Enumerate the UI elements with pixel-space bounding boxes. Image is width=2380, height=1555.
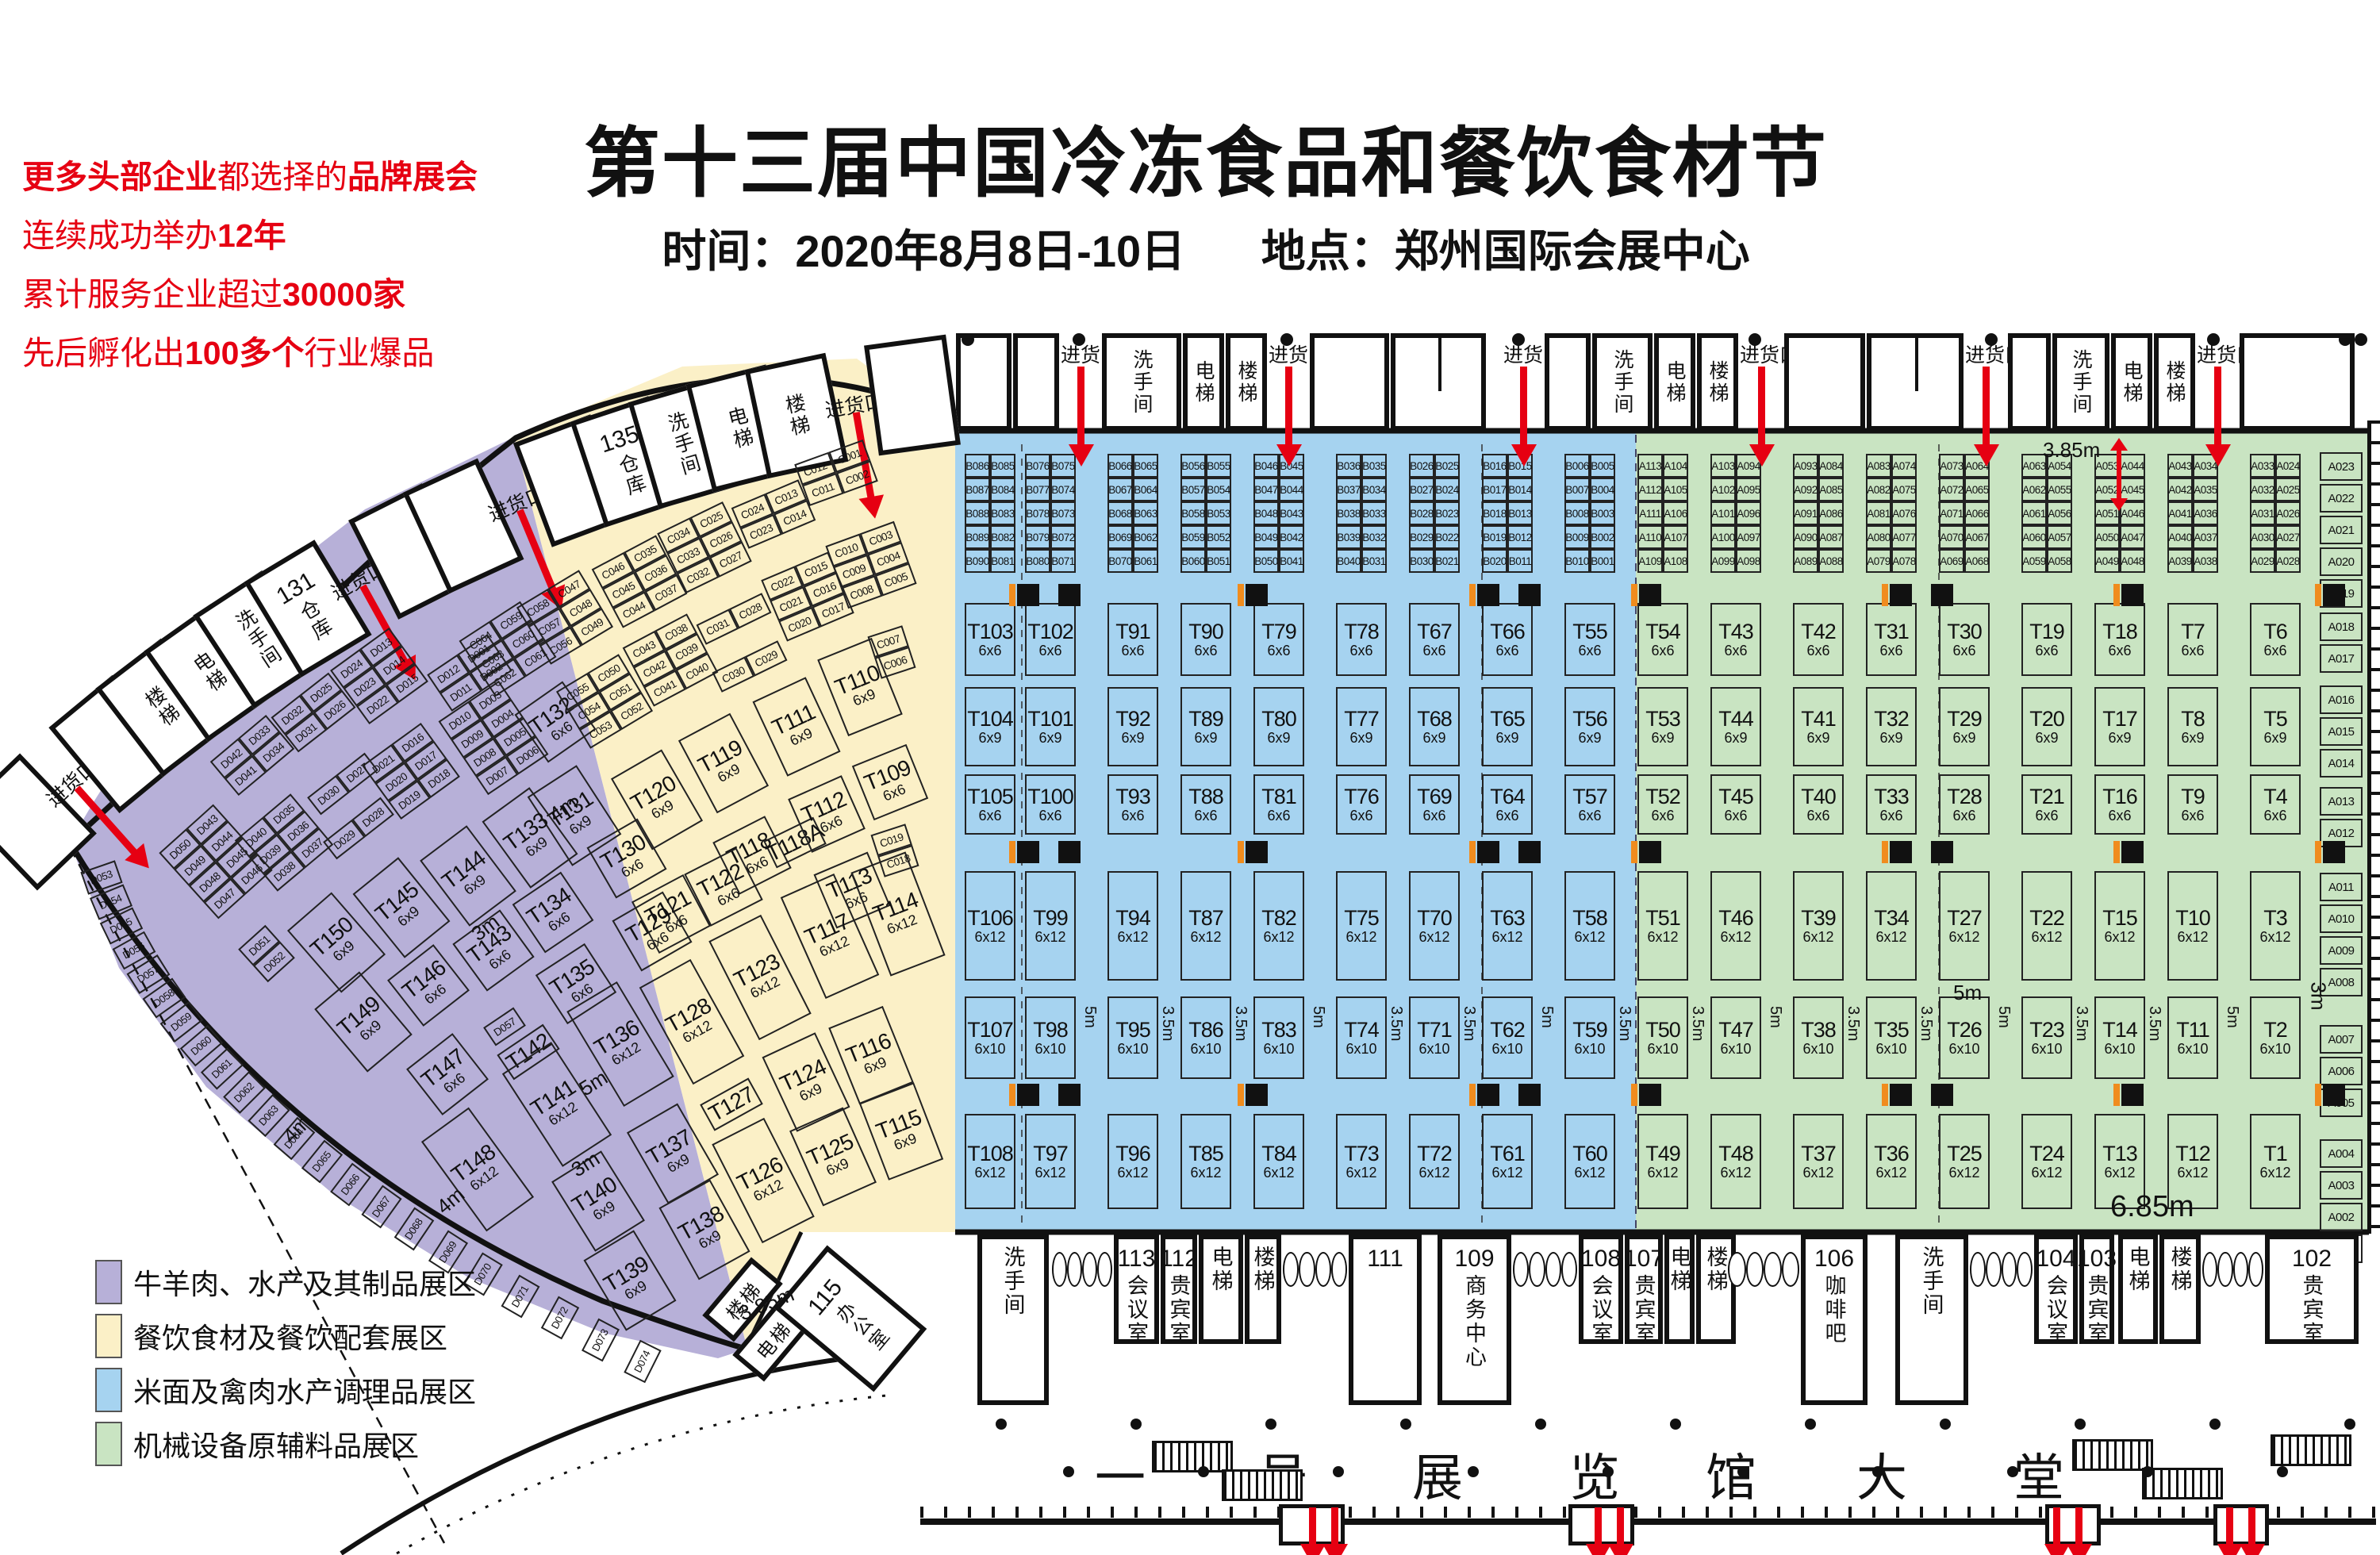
booth-B006: B006: [1564, 454, 1590, 478]
booth-T72: T726x12: [1409, 1114, 1460, 1209]
booth-B090: B090: [965, 549, 990, 573]
legend-item-catering: 餐饮食材及餐饮配套展区: [95, 1309, 476, 1363]
booth-B046: B046: [1253, 454, 1279, 478]
kiosk-marker: [1009, 584, 1015, 606]
booth-A021: A021: [2320, 516, 2363, 544]
booth-B086: B086: [965, 454, 990, 478]
booth-id: T17: [2102, 708, 2137, 730]
booth-size: 6x10: [2104, 1042, 2135, 1057]
booth-size: 6x12: [2259, 1165, 2290, 1181]
booth-B089: B089: [965, 525, 990, 549]
booth-B049: B049: [1253, 525, 1279, 549]
booth-B055: B055: [1206, 454, 1231, 478]
kiosk-marker: [1017, 584, 1039, 606]
booth-B022: B022: [1434, 525, 1460, 549]
legend-swatch-green: [95, 1422, 122, 1466]
kiosk-marker: [2121, 584, 2144, 606]
booth-size: 6x9: [1952, 731, 1975, 746]
booth-id: T31: [1874, 620, 1909, 643]
booth-T50: T506x10: [1637, 996, 1688, 1079]
booth-T29: T296x9: [1939, 687, 1990, 766]
booth-A106: A106: [1663, 501, 1688, 525]
booth-id: T42: [1801, 620, 1836, 643]
kiosk-marker: [1477, 1084, 1499, 1106]
booth-id: T108: [967, 1142, 1013, 1165]
booth-id: T20: [2029, 708, 2064, 730]
booth-id: T1: [2263, 1142, 2287, 1165]
booth-B053: B053: [1206, 501, 1231, 525]
room-label: 电梯: [1660, 360, 1689, 405]
booth-id: T5: [2263, 708, 2287, 730]
booth-size: 6x6: [1806, 643, 1829, 658]
booth-size: 6x6: [1422, 808, 1445, 824]
vip-room: 112贵宾室: [1161, 1234, 1197, 1344]
booth-A071: A071: [1939, 501, 1964, 525]
kiosk-marker: [1639, 841, 1661, 863]
column-dot: [1468, 1466, 1479, 1477]
entrance-arrow: [2226, 1507, 2233, 1545]
booth-T39: T396x12: [1793, 871, 1844, 981]
booth-size: 6x6: [1267, 643, 1290, 658]
room-label: 洗手间: [1917, 1246, 1948, 1317]
booth-size: 6x10: [1948, 1042, 1979, 1057]
elevator: 电梯: [1199, 1234, 1243, 1344]
booth-T15: T156x12: [2094, 871, 2145, 981]
kiosk-marker: [1518, 841, 1541, 863]
booth-A089: A089: [1793, 549, 1818, 573]
booth-A113: A113: [1637, 454, 1663, 478]
booth-T88: T886x6: [1180, 774, 1231, 835]
booth-B065: B065: [1133, 454, 1158, 478]
booth-size: 6x6: [1038, 643, 1061, 658]
booth-size: 6x10: [1720, 1042, 1751, 1057]
booth-size: 6x12: [1117, 1165, 1148, 1181]
booth-size: 6x10: [2259, 1042, 2290, 1057]
measure-label: 6.85m: [2110, 1190, 2194, 1224]
booth-B032: B032: [1361, 525, 1387, 549]
booth-id: T48: [1718, 1142, 1753, 1165]
booth-id: T99: [1033, 907, 1068, 929]
booth-size: 6x10: [1418, 1042, 1449, 1057]
booth-id: T13: [2102, 1142, 2137, 1165]
column-dot: [1265, 1419, 1276, 1430]
booth-A043: A043: [2167, 454, 2193, 478]
measure-arrow: [2110, 438, 2128, 451]
room-label: 会议室: [2040, 1274, 2071, 1346]
column-dot: [1872, 1466, 1883, 1477]
booth-A097: A097: [1736, 525, 1761, 549]
booth-size: 6x10: [1574, 1042, 1605, 1057]
booth-A110: A110: [1637, 525, 1663, 549]
booth-T82: T826x12: [1253, 871, 1304, 981]
booth-size: 6x12: [1035, 1165, 1065, 1181]
booth-T59: T596x10: [1564, 996, 1615, 1079]
booth-id: T78: [1344, 620, 1379, 643]
booth-B019: B019: [1482, 525, 1507, 549]
booth-id: T15: [2102, 907, 2137, 929]
lobby-char: 一: [1095, 1438, 1146, 1511]
booth-id: T7: [2181, 620, 2205, 643]
booth-id: T16: [2102, 785, 2137, 808]
a-booth-block: A073A064A072A065A071A066A070A067A069A068: [1939, 454, 1990, 573]
booth-A102: A102: [1710, 478, 1736, 501]
restroom: 洗手间: [2052, 333, 2109, 431]
booth-id: T60: [1572, 1142, 1607, 1165]
booth-id: T75: [1344, 907, 1379, 929]
booth-size: 6x10: [2031, 1042, 2062, 1057]
booth-id: T35: [1874, 1019, 1909, 1041]
booth-T22: T226x12: [2021, 871, 2072, 981]
meeting-room: 113会议室: [1114, 1234, 1159, 1344]
booth-id: T39: [1801, 907, 1836, 929]
booth-T77: T776x9: [1336, 687, 1387, 766]
booth-id: T32: [1874, 708, 1909, 730]
room-label: 楼梯: [1701, 1246, 1732, 1293]
booth-T67: T676x6: [1409, 603, 1460, 676]
booth-B063: B063: [1133, 501, 1158, 525]
booth-size: 6x6: [2108, 808, 2131, 824]
booth-A079: A079: [1866, 549, 1891, 573]
booth-id: T12: [2175, 1142, 2210, 1165]
booth-size: 6x6: [2181, 808, 2204, 824]
booth-T95: T956x10: [1107, 996, 1158, 1079]
booth-size: 6x6: [2108, 643, 2131, 658]
booth-size: 6x10: [2177, 1042, 2208, 1057]
booth-id: T21: [2029, 785, 2064, 808]
booth-id: T61: [1490, 1142, 1525, 1165]
booth-B009: B009: [1564, 525, 1590, 549]
booth-size: 6x9: [1651, 731, 1674, 746]
booth-id: T92: [1115, 708, 1150, 730]
booth-T5: T56x9: [2250, 687, 2301, 766]
booth-A002: A002: [2320, 1203, 2363, 1231]
booth-id: T65: [1490, 708, 1525, 730]
aisle-width-label: 3.5m: [1917, 1006, 1935, 1041]
booth-A060: A060: [2021, 525, 2047, 549]
booth-T11: T116x10: [2167, 996, 2218, 1079]
booth-id: T52: [1645, 785, 1680, 808]
kiosk-marker: [1246, 584, 1268, 606]
kiosk-marker: [1882, 584, 1888, 606]
room-number: 111: [1367, 1246, 1403, 1273]
booth-id: T37: [1801, 1142, 1836, 1165]
entrance-arrow: [2248, 1507, 2255, 1545]
booth-A084: A084: [1818, 454, 1844, 478]
kiosk-marker: [1238, 584, 1244, 606]
booth-B002: B002: [1590, 525, 1615, 549]
booth-size: 6x12: [1948, 1165, 1979, 1181]
booth-id: T103: [967, 620, 1013, 643]
room-number: 102: [2292, 1246, 2332, 1273]
column-dot: [996, 1419, 1007, 1430]
booth-T20: T206x9: [2021, 687, 2072, 766]
booth-size: 6x6: [1879, 643, 1902, 658]
booth-id: T38: [1801, 1019, 1836, 1041]
legend-swatch-yellow: [95, 1314, 122, 1358]
booth-size: 6x12: [974, 1165, 1005, 1181]
booth-T58: T586x12: [1564, 871, 1615, 981]
entrance-arrow: [1983, 367, 1990, 446]
room-label: 电梯: [1206, 1246, 1237, 1293]
entrance-arrow: [2053, 1507, 2060, 1545]
booth-T70: T706x12: [1409, 871, 1460, 981]
booth-T3: T36x12: [2250, 871, 2301, 981]
booth-size: 6x6: [978, 808, 1001, 824]
kiosk-marker: [1477, 584, 1499, 606]
booth-size: 6x12: [1035, 930, 1065, 945]
b-booth-block: B086B085B087B084B088B083B089B082B090B081: [965, 454, 1015, 573]
booth-id: T53: [1645, 708, 1680, 730]
booth-id: T69: [1417, 785, 1452, 808]
booth-A038: A038: [2193, 549, 2218, 573]
aisle-width-label: 5m: [2223, 1006, 2241, 1028]
booth-size: 6x6: [2263, 643, 2286, 658]
entrance-arrow: [1617, 1507, 1624, 1545]
booth-id: T24: [2029, 1142, 2064, 1165]
booth-size: 6x6: [1349, 808, 1372, 824]
elevator: 电梯: [1183, 333, 1224, 431]
kiosk-marker: [1246, 1084, 1268, 1106]
booth-T62: T626x10: [1482, 996, 1533, 1079]
column-dot: [2339, 333, 2351, 346]
booth-A066: A066: [1964, 501, 1990, 525]
booth-A059: A059: [2021, 549, 2047, 573]
booth-id: T100: [1027, 785, 1073, 808]
kiosk-marker: [2323, 1084, 2345, 1106]
booth-T54: T546x6: [1637, 603, 1688, 676]
entrance-arrow: [1758, 367, 1765, 446]
booth-size: 6x6: [1349, 643, 1372, 658]
b-booth-block: B026B025B027B024B028B023B029B022B030B021: [1409, 454, 1460, 573]
booth-T60: T606x12: [1564, 1114, 1615, 1209]
stairs: 楼梯: [2159, 1234, 2201, 1344]
aisle-width-label: 3.5m: [1688, 1006, 1706, 1041]
booth-id: T19: [2029, 620, 2064, 643]
booth-A039: A039: [2167, 549, 2193, 573]
aisle-width-label: 3.5m: [1387, 1006, 1405, 1041]
booth-A088: A088: [1818, 549, 1844, 573]
room: [1784, 333, 1865, 431]
booth-id: T47: [1718, 1019, 1753, 1041]
booth-B021: B021: [1434, 549, 1460, 573]
kiosk-marker: [1017, 1084, 1039, 1106]
vip-room: 107贵宾室: [1625, 1234, 1663, 1344]
booth-size: 6x6: [1952, 643, 1975, 658]
booth-A069: A069: [1939, 549, 1964, 573]
kiosk-marker: [2315, 841, 2321, 863]
booth-id: T11: [2176, 1019, 2209, 1041]
booth-id: T81: [1261, 785, 1296, 808]
room: [864, 335, 961, 456]
booth-T84: T846x12: [1253, 1114, 1304, 1209]
booth-T45: T456x6: [1710, 774, 1761, 835]
booth-A033: A033: [2250, 454, 2275, 478]
booth-B026: B026: [1409, 454, 1434, 478]
restroom: 洗手间: [1102, 333, 1181, 431]
booth-A090: A090: [1793, 525, 1818, 549]
promo-text: 更多头部企业都选择的品牌展会 连续成功举办12年 累计服务企业超过30000家 …: [22, 148, 478, 382]
booth-id: T79: [1261, 620, 1296, 643]
booth-A058: A058: [2047, 549, 2072, 573]
booth-B007: B007: [1564, 478, 1590, 501]
booth-B080: B080: [1025, 549, 1050, 573]
booth-size: 6x6: [1194, 643, 1217, 658]
booth-A067: A067: [1964, 525, 1990, 549]
kiosk-marker: [1931, 1084, 1953, 1106]
booth-size: 6x12: [2177, 1165, 2208, 1181]
booth-id: T6: [2263, 620, 2287, 643]
booth-size: 6x12: [1263, 1165, 1294, 1181]
booth-size: 6x6: [1879, 808, 1902, 824]
room-label: 楼梯: [2165, 1246, 2196, 1293]
booth-B052: B052: [1206, 525, 1231, 549]
column-dot: [1805, 1419, 1816, 1430]
meeting-room: 104会议室: [2034, 1234, 2078, 1344]
subtitle-time: 时间：2020年8月8日-10日: [662, 226, 1185, 276]
booth-size: 6x6: [1495, 643, 1518, 658]
room-number: 103: [2077, 1246, 2117, 1273]
booth-T94: T946x12: [1107, 871, 1158, 981]
booth-A112: A112: [1637, 478, 1663, 501]
booth-B060: B060: [1180, 549, 1206, 573]
stairs: 楼梯: [1226, 333, 1267, 431]
booth-size: 6x6: [1806, 808, 1829, 824]
restroom: 洗手间: [1895, 1234, 1968, 1405]
room-label: 电梯: [2123, 1246, 2154, 1293]
kiosk-marker: [1238, 1084, 1244, 1106]
booth-B035: B035: [1361, 454, 1387, 478]
booth-size: 6x12: [1875, 1165, 1906, 1181]
entrance-arrow: [2214, 367, 2221, 446]
room-label: 电梯: [1664, 1246, 1695, 1293]
booth-id: T94: [1115, 907, 1150, 929]
booth-B010: B010: [1564, 549, 1590, 573]
booth-id: T46: [1718, 907, 1753, 929]
booth-T63: T636x12: [1482, 871, 1533, 981]
booth-T16: T166x6: [2094, 774, 2145, 835]
booth-id: T104: [967, 708, 1013, 730]
colonnade: [1970, 1252, 2033, 1287]
booth-id: T36: [1874, 1142, 1909, 1165]
booth-size: 6x9: [1349, 731, 1372, 746]
booth-B083: B083: [990, 501, 1015, 525]
booth-A065: A065: [1964, 478, 1990, 501]
booth-id: T102: [1027, 620, 1073, 643]
column-dot: [2355, 333, 2367, 346]
booth-A105: A105: [1663, 478, 1688, 501]
booth-A009: A009: [2320, 936, 2363, 965]
booth-T27: T276x12: [1939, 871, 1990, 981]
aisle-width-label: 5m: [1537, 1006, 1556, 1028]
booth-D074: D074: [624, 1340, 661, 1384]
booth-id: T71: [1417, 1019, 1452, 1041]
measure-arrow: [2117, 444, 2121, 500]
booth-size: 6x9: [1578, 731, 1601, 746]
booth-B018: B018: [1482, 501, 1507, 525]
booth-id: T74: [1344, 1019, 1379, 1041]
aisle-width-label: 3.5m: [1158, 1006, 1177, 1041]
aisle-width-label: 5m: [1081, 1006, 1099, 1028]
booth-id: T33: [1874, 785, 1909, 808]
booth-B087: B087: [965, 478, 990, 501]
booth-T80: T806x9: [1253, 687, 1304, 766]
booth-T28: T286x6: [1939, 774, 1990, 835]
booth-id: T57: [1572, 785, 1607, 808]
column-dot: [2207, 333, 2220, 346]
kiosk-marker: [1477, 841, 1499, 863]
booth-B008: B008: [1564, 501, 1590, 525]
floorplan-poster: T1036x6T1046x9T1056x6T1066x12T1076x10T10…: [0, 0, 2380, 1555]
booth-T90: T906x6: [1180, 603, 1231, 676]
booth-size: 6x6: [1724, 643, 1747, 658]
column-dot: [2344, 1419, 2355, 1430]
booth-id: T55: [1572, 620, 1607, 643]
measure-label: 3.85m: [2043, 438, 2100, 463]
booth-size: 6x9: [1495, 731, 1518, 746]
a-booth-block: A033A024A032A025A031A026A030A027A029A028: [2250, 454, 2301, 573]
room-label: 电梯: [1189, 360, 1218, 405]
kiosk-marker: [1017, 841, 1039, 863]
room-number: 107: [1624, 1246, 1664, 1273]
subtitle-place: 地点：郑州国际会展中心: [1261, 226, 1750, 276]
elevator: 电梯: [1654, 333, 1695, 431]
kiosk-marker: [1009, 1084, 1015, 1106]
booth-B003: B003: [1590, 501, 1615, 525]
booth-size: 6x12: [974, 930, 1005, 945]
booth-B081: B081: [990, 549, 1015, 573]
booth-id: T95: [1115, 1019, 1150, 1041]
booth-A030: A030: [2250, 525, 2275, 549]
booth-id: T82: [1261, 907, 1296, 929]
column-dot: [1400, 1419, 1411, 1430]
booth-id: T3: [2263, 907, 2287, 929]
booth-size: 6x9: [978, 731, 1001, 746]
booth-T44: T446x9: [1710, 687, 1761, 766]
booth-T36: T366x12: [1866, 1114, 1917, 1209]
booth-id: T4: [2263, 785, 2287, 808]
a-booth-block: A063A054A062A055A061A056A060A057A059A058: [2021, 454, 2072, 573]
booth-size: 6x6: [1121, 808, 1144, 824]
entrance-arrow: [1331, 1507, 1338, 1545]
booth-T107: T1076x10: [965, 996, 1015, 1079]
booth-A087: A087: [1818, 525, 1844, 549]
booth-T81: T816x6: [1253, 774, 1304, 835]
booth-id: T107: [967, 1019, 1013, 1041]
booth-A103: A103: [1710, 454, 1736, 478]
booth-id: T14: [2102, 1019, 2137, 1041]
a-booth-block: A043A034A042A035A041A036A040A037A039A038: [2167, 454, 2218, 573]
booth-B084: B084: [990, 478, 1015, 501]
kiosk-marker: [1518, 1084, 1541, 1106]
column-dot: [2142, 1466, 2153, 1477]
booth-size: 6x12: [1263, 930, 1294, 945]
booth-A040: A040: [2167, 525, 2193, 549]
booth-A068: A068: [1964, 549, 1990, 573]
booth-B076: B076: [1025, 454, 1050, 478]
booth-size: 6x12: [2031, 930, 2062, 945]
booth-T99: T996x12: [1025, 871, 1076, 981]
room-number: 108: [1581, 1246, 1621, 1273]
booth-T52: T526x6: [1637, 774, 1688, 835]
booth-B066: B066: [1107, 454, 1133, 478]
booth-B038: B038: [1336, 501, 1361, 525]
booth-A036: A036: [2193, 501, 2218, 525]
booth-T57: T576x6: [1564, 774, 1615, 835]
booth-size: 6x12: [1491, 930, 1522, 945]
room-number: 113: [1118, 1246, 1156, 1273]
column-dot: [2209, 1419, 2221, 1430]
booth-B067: B067: [1107, 478, 1133, 501]
